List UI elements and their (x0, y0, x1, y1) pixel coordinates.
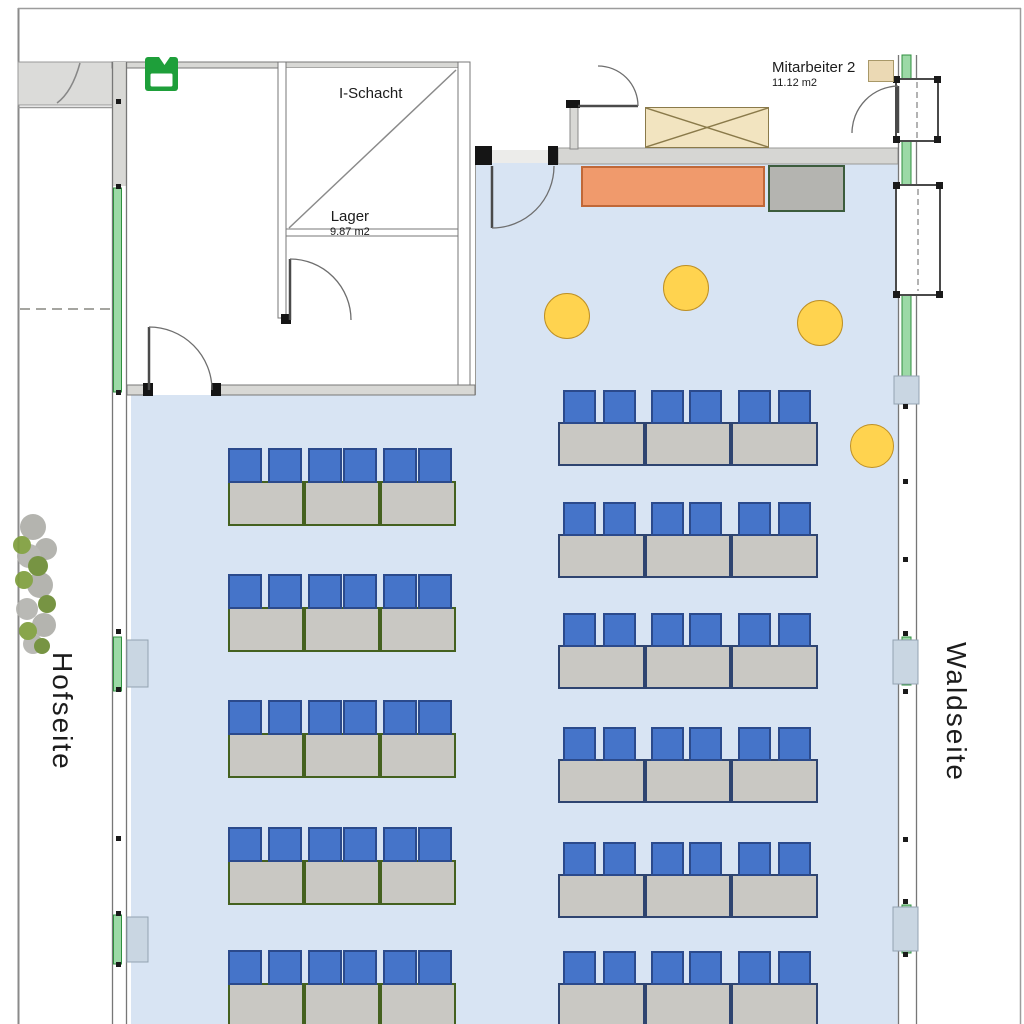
desk-table (558, 645, 645, 689)
desk-table (645, 983, 732, 1024)
chair (603, 951, 636, 985)
desk-table (558, 874, 645, 918)
desk-table (304, 607, 380, 652)
chair (418, 827, 452, 862)
side-label-waldseite: Waldseite (940, 642, 971, 782)
desk-table (228, 860, 304, 905)
desk-table (228, 733, 304, 778)
chair (308, 950, 342, 985)
floor-plan: I-Schacht Lager 9.87 m2 Mitarbeiter 2 11… (0, 0, 1024, 1024)
chair (738, 613, 771, 647)
chair (778, 502, 811, 536)
chair (651, 502, 684, 536)
chair (228, 827, 262, 862)
chair (308, 700, 342, 735)
chair (343, 448, 377, 483)
chair (268, 950, 302, 985)
chair (738, 727, 771, 761)
room-label-shaft: I-Schacht (336, 86, 405, 103)
chair (689, 951, 722, 985)
desk-table (304, 860, 380, 905)
stool (663, 265, 709, 311)
chair (563, 613, 596, 647)
chair (418, 448, 452, 483)
chair (603, 502, 636, 536)
chair (689, 390, 722, 424)
chair (778, 951, 811, 985)
cross-lines (646, 108, 768, 147)
desk-table (380, 733, 456, 778)
side-label-hofseite: Hofseite (46, 652, 77, 771)
chair (383, 448, 417, 483)
chair (228, 448, 262, 483)
chair (343, 950, 377, 985)
chair (418, 700, 452, 735)
chair (563, 842, 596, 876)
chair (689, 502, 722, 536)
chair (778, 842, 811, 876)
chair (603, 613, 636, 647)
chair (308, 574, 342, 609)
desk-table (645, 534, 732, 578)
small-cabinet (868, 60, 894, 82)
chair (383, 827, 417, 862)
chair (778, 390, 811, 424)
desk-table (228, 481, 304, 526)
desk-table (731, 422, 818, 466)
desk-table (731, 645, 818, 689)
chair (778, 727, 811, 761)
desk-table (645, 874, 732, 918)
chair (418, 950, 452, 985)
desk-table (380, 481, 456, 526)
storage-room-name: Lager (330, 209, 370, 226)
desk-table (558, 759, 645, 803)
desk-table (228, 983, 304, 1024)
desk-table (731, 759, 818, 803)
desk-table (558, 983, 645, 1024)
chair (603, 842, 636, 876)
chair (778, 613, 811, 647)
desk-table (645, 759, 732, 803)
chair (651, 613, 684, 647)
chair (738, 842, 771, 876)
chair (268, 827, 302, 862)
wood-table (645, 107, 769, 148)
chair (563, 727, 596, 761)
stool (544, 293, 590, 339)
chair (418, 574, 452, 609)
chair (738, 390, 771, 424)
room-label-staff: Mitarbeiter 2 11.12 m2 (772, 60, 855, 89)
storage-room-area: 9.87 m2 (330, 226, 370, 238)
chair (343, 827, 377, 862)
chair (689, 727, 722, 761)
chair (689, 613, 722, 647)
desk-table (558, 422, 645, 466)
desk-table (304, 983, 380, 1024)
staff-room-name: Mitarbeiter 2 (772, 60, 855, 77)
desk-table (228, 607, 304, 652)
chair (308, 827, 342, 862)
chair (689, 842, 722, 876)
chair (603, 727, 636, 761)
chair (343, 700, 377, 735)
desk-table (731, 534, 818, 578)
desk-table (380, 607, 456, 652)
desk-table (645, 645, 732, 689)
furniture-layer (0, 0, 1024, 1024)
chair (268, 574, 302, 609)
chair (268, 448, 302, 483)
chair (738, 951, 771, 985)
chair (383, 574, 417, 609)
chair (651, 727, 684, 761)
chair (563, 390, 596, 424)
chair (738, 502, 771, 536)
chair (651, 390, 684, 424)
chair (603, 390, 636, 424)
desk-table (380, 983, 456, 1024)
cabinet (768, 165, 845, 212)
chair (268, 700, 302, 735)
desk-table (304, 733, 380, 778)
sideboard (581, 166, 765, 207)
room-label-storage: Lager 9.87 m2 (330, 209, 370, 238)
chair (228, 950, 262, 985)
chair (651, 951, 684, 985)
chair (343, 574, 377, 609)
chair (228, 700, 262, 735)
desk-table (304, 481, 380, 526)
chair (651, 842, 684, 876)
chair (383, 700, 417, 735)
chair (563, 951, 596, 985)
chair (308, 448, 342, 483)
chair (383, 950, 417, 985)
chair (228, 574, 262, 609)
desk-table (380, 860, 456, 905)
staff-room-area: 11.12 m2 (772, 77, 855, 89)
stool (797, 300, 843, 346)
desk-table (645, 422, 732, 466)
desk-table (558, 534, 645, 578)
desk-table (731, 983, 818, 1024)
desk-table (731, 874, 818, 918)
chair (563, 502, 596, 536)
stool (850, 424, 894, 468)
